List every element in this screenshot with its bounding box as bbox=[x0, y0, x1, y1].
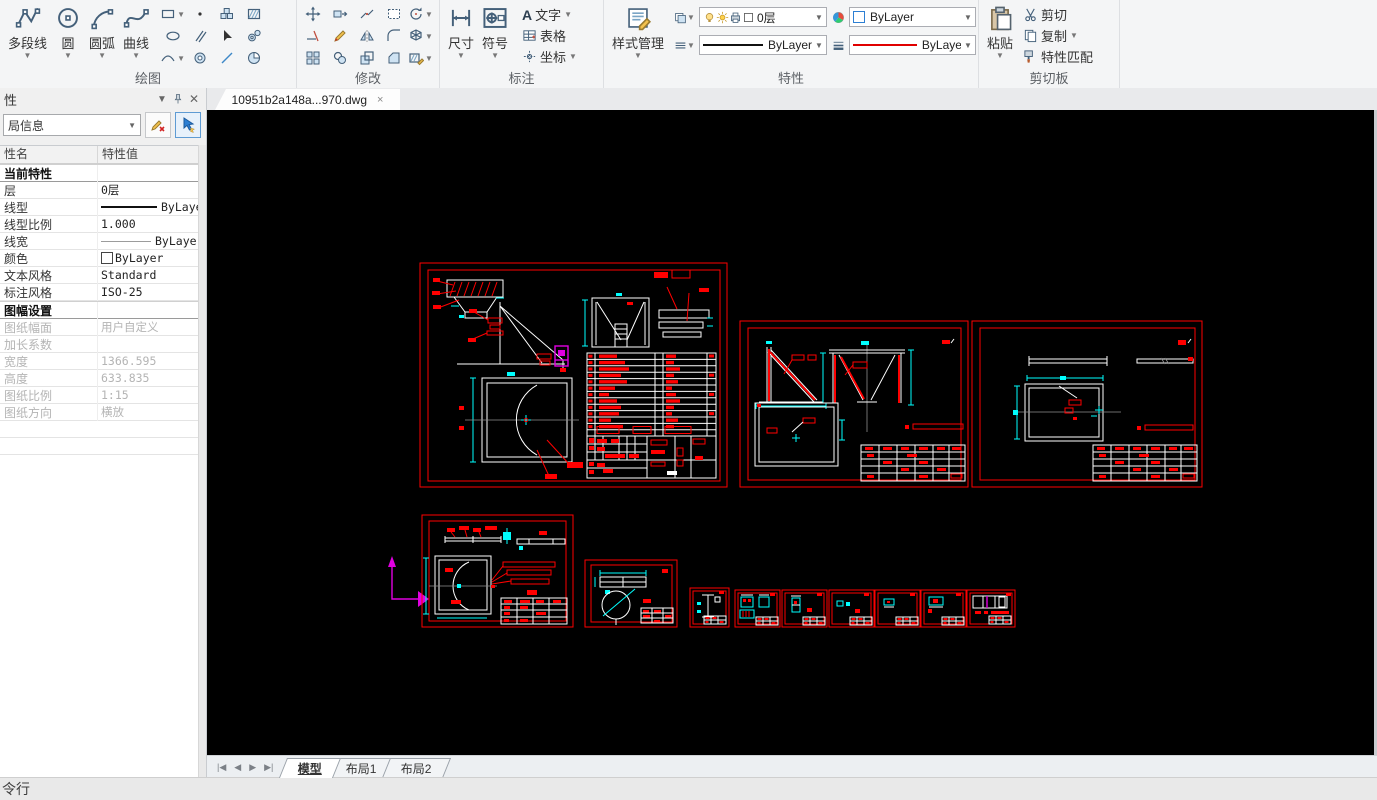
circle-label: 圆 bbox=[62, 33, 75, 52]
stretch-icon bbox=[332, 6, 348, 22]
ribbon-group-draw: 多段线 ▼ 圆 ▼ 圆弧 ▼ 曲线 ▼ ▼▼ bbox=[0, 0, 297, 88]
stretch-button[interactable] bbox=[326, 3, 353, 25]
linetype-menu-icon[interactable] bbox=[674, 39, 687, 52]
spline-icon bbox=[123, 5, 149, 31]
break-button[interactable] bbox=[353, 3, 380, 25]
model-space bbox=[207, 110, 1377, 755]
select-rect-button[interactable] bbox=[380, 3, 407, 25]
blocks-icon bbox=[219, 6, 235, 22]
symbol-icon bbox=[482, 5, 508, 31]
explode-button[interactable]: ▼ bbox=[407, 25, 434, 47]
layout-nav-buttons: |◀ ◀ ▶ ▶| bbox=[207, 756, 283, 778]
copy-button[interactable]: 复制 ▼ bbox=[1019, 25, 1097, 46]
drawing-sheet-small-4 bbox=[829, 590, 874, 627]
table-label: 表格 bbox=[540, 26, 566, 45]
chevron-down-icon: ▼ bbox=[687, 14, 695, 21]
cad-application-window: 多段线 ▼ 圆 ▼ 圆弧 ▼ 曲线 ▼ ▼▼ bbox=[0, 0, 1377, 800]
property-name: 线宽 bbox=[0, 233, 98, 250]
layout-tab-label: 模型 bbox=[298, 760, 322, 777]
drawing-sheet-5 bbox=[585, 560, 677, 627]
style-manager-label: 样式管理 bbox=[612, 33, 664, 52]
chevron-down-icon: ▼ bbox=[177, 11, 185, 18]
modify-group-label: 修改 bbox=[297, 71, 439, 88]
cut-icon bbox=[1023, 7, 1038, 22]
property-section-header: 图幅设置 bbox=[0, 301, 200, 319]
bulb-icon bbox=[703, 11, 716, 24]
layout-tab-label: 布局2 bbox=[401, 760, 432, 777]
copy-object-button[interactable] bbox=[326, 47, 353, 69]
properties-table: 性名 特性值 当前特性层0层线型ByLayer线型比例1.000线宽ByLaye… bbox=[0, 145, 200, 777]
pick-arrow-button[interactable] bbox=[213, 25, 240, 47]
select-rect-icon bbox=[386, 6, 402, 22]
layout-tab-label: 布局1 bbox=[346, 760, 377, 777]
modify-tools-grid: ▼▼▼ bbox=[299, 3, 434, 69]
property-row-empty bbox=[0, 421, 200, 438]
column-header-name: 性名 bbox=[0, 146, 98, 163]
linetype-swatch bbox=[101, 206, 157, 208]
table-icon bbox=[522, 28, 537, 43]
polyline-button[interactable]: 多段线 ▼ bbox=[5, 2, 50, 59]
scale-button[interactable] bbox=[353, 47, 380, 69]
panel-scrollbar[interactable] bbox=[198, 145, 206, 777]
draw-group-label: 绘图 bbox=[0, 71, 296, 88]
copy-label: 复制 bbox=[1041, 26, 1067, 45]
property-value[interactable]: 1.000 bbox=[98, 217, 200, 231]
rotate-button[interactable]: ▼ bbox=[407, 3, 434, 25]
drawing-canvas[interactable] bbox=[207, 110, 1377, 755]
arc-button[interactable]: 圆弧 ▼ bbox=[86, 2, 118, 59]
chevron-down-icon: ▼ bbox=[687, 42, 695, 49]
ribbon-group-properties: 样式管理 ▼ ▼ 0层 ▼ bbox=[604, 0, 979, 88]
lineweight-dropdown[interactable]: ByLayer ▼ bbox=[849, 35, 976, 55]
annotate-group-label: 标注 bbox=[440, 71, 603, 88]
property-value[interactable]: ByLayer bbox=[98, 200, 200, 214]
property-name: 宽度 bbox=[0, 353, 98, 370]
style-manager-button[interactable]: 样式管理 ▼ bbox=[609, 2, 667, 59]
circle-button[interactable]: 圆 ▼ bbox=[52, 2, 84, 59]
drawing-sheet-2 bbox=[740, 321, 968, 487]
chevron-down-icon: ▼ bbox=[425, 11, 433, 18]
chevron-down-icon: ▼ bbox=[457, 52, 465, 59]
property-name: 文本风格 bbox=[0, 267, 98, 284]
paste-button[interactable]: 粘贴 ▼ bbox=[984, 2, 1016, 59]
clipboard-group-label: 剪切板 bbox=[979, 71, 1119, 88]
document-tab-title: 10951b2a148a...970.dwg bbox=[232, 93, 367, 107]
hatch-icon bbox=[246, 6, 262, 22]
blocks-button[interactable] bbox=[213, 3, 240, 25]
style-manager-icon bbox=[625, 5, 651, 31]
object-selector-dropdown[interactable]: 局信息 ▼ bbox=[3, 114, 141, 136]
ellipse-icon bbox=[165, 28, 181, 44]
layer-dropdown[interactable]: 0层 ▼ bbox=[699, 7, 827, 27]
chevron-down-icon: ▼ bbox=[128, 121, 136, 130]
paste-icon bbox=[987, 5, 1013, 31]
properties-panel: 性 ▼ ✕ 局信息 ▼ 性名 特性值 当前特性层0层线型ByLayer线型比例1… bbox=[0, 88, 207, 777]
chevron-down-icon: ▼ bbox=[961, 13, 972, 22]
property-value[interactable]: 横放 bbox=[98, 404, 200, 420]
property-value[interactable]: ByLayer bbox=[98, 251, 200, 265]
symbol-label: 符号 bbox=[482, 33, 508, 52]
property-name: 层 bbox=[0, 182, 98, 199]
chevron-down-icon[interactable]: ▼ bbox=[154, 94, 170, 105]
property-value[interactable]: Standard bbox=[98, 268, 200, 282]
property-row[interactable]: 文本风格Standard bbox=[0, 267, 200, 284]
ellipse-button[interactable] bbox=[159, 25, 186, 47]
layout-tab-layout2[interactable]: 布局2 bbox=[382, 758, 451, 778]
layer-color-icon bbox=[742, 11, 755, 24]
scale-icon bbox=[359, 50, 375, 66]
match-properties-button[interactable]: 特性匹配 bbox=[1019, 46, 1097, 67]
chamfer-button[interactable] bbox=[380, 47, 407, 69]
chevron-down-icon: ▼ bbox=[177, 55, 185, 62]
cut-label: 剪切 bbox=[1041, 5, 1067, 24]
pie-button[interactable] bbox=[240, 47, 267, 69]
color-swatch bbox=[101, 252, 113, 264]
color-swatch bbox=[853, 11, 865, 23]
chevron-down-icon: ▼ bbox=[425, 33, 433, 40]
edit-pencil-button[interactable] bbox=[326, 25, 353, 47]
line-icon bbox=[219, 50, 235, 66]
dimension-button[interactable]: 尺寸 ▼ bbox=[445, 2, 477, 59]
line-button[interactable] bbox=[213, 47, 240, 69]
arc-icon bbox=[89, 5, 115, 31]
chevron-down-icon: ▼ bbox=[961, 41, 972, 50]
text-icon: A bbox=[522, 7, 532, 23]
text-label: 文字 bbox=[535, 5, 561, 24]
property-name: 图纸幅面 bbox=[0, 319, 98, 336]
curve-icon bbox=[160, 50, 176, 66]
text-button[interactable]: A 文字 ▼ bbox=[518, 4, 581, 25]
drawing-sheet-small-5 bbox=[875, 590, 920, 627]
parallel-icon bbox=[192, 28, 208, 44]
property-row[interactable]: 图纸幅面用户自定义 bbox=[0, 319, 200, 336]
break-icon bbox=[359, 6, 375, 22]
polyline-label: 多段线 bbox=[8, 33, 47, 52]
color-dropdown[interactable]: ByLayer ▼ bbox=[849, 7, 976, 27]
move-button[interactable] bbox=[299, 3, 326, 25]
drawing-sheet-3 bbox=[972, 321, 1202, 487]
printer-icon bbox=[729, 11, 742, 24]
parallel-button[interactable] bbox=[186, 25, 213, 47]
layers-icon[interactable] bbox=[674, 11, 687, 24]
linetype-swatch bbox=[703, 44, 763, 46]
object-selector-value: 局信息 bbox=[8, 117, 44, 134]
document-tab-strip: 10951b2a148a...970.dwg × bbox=[207, 88, 1377, 111]
property-row-empty bbox=[0, 438, 200, 455]
lineweight-swatch bbox=[101, 241, 151, 242]
property-name: 颜色 bbox=[0, 250, 98, 267]
chevron-down-icon: ▼ bbox=[634, 52, 642, 59]
drawing-sheet-small-1 bbox=[690, 588, 729, 627]
coordinate-button[interactable]: 坐标 ▼ bbox=[518, 46, 581, 67]
property-row[interactable]: 线宽ByLayer bbox=[0, 233, 200, 250]
hatch-edit-icon bbox=[408, 50, 424, 66]
circle-icon bbox=[55, 5, 81, 31]
ribbon: 多段线 ▼ 圆 ▼ 圆弧 ▼ 曲线 ▼ ▼▼ bbox=[0, 0, 1377, 89]
dimension-icon bbox=[448, 5, 474, 31]
explode-icon bbox=[408, 28, 424, 44]
drawing-sheet-small-3 bbox=[782, 590, 827, 627]
sun-icon bbox=[716, 11, 729, 24]
copy-object-icon bbox=[332, 50, 348, 66]
chevron-down-icon: ▼ bbox=[132, 52, 140, 59]
chevron-down-icon: ▼ bbox=[64, 52, 72, 59]
first-tab-icon[interactable]: |◀ bbox=[217, 762, 226, 773]
arc-label: 圆弧 bbox=[89, 33, 115, 52]
property-row[interactable]: 层0层 bbox=[0, 182, 200, 199]
quick-select-button[interactable] bbox=[175, 112, 201, 138]
point-button[interactable] bbox=[186, 3, 213, 25]
ribbon-group-clipboard: 粘贴 ▼ 剪切 复制 ▼ 特性匹配 bbox=[979, 0, 1120, 88]
property-row[interactable]: 颜色ByLayer bbox=[0, 250, 200, 267]
drawing-sheet-small-2 bbox=[735, 590, 780, 627]
pie-icon bbox=[246, 50, 262, 66]
column-header-value: 特性值 bbox=[98, 146, 200, 163]
property-row[interactable]: 图纸方向横放 bbox=[0, 404, 200, 421]
pick-arrow-icon bbox=[219, 28, 235, 44]
property-row[interactable]: 线型比例1.000 bbox=[0, 216, 200, 233]
drawing-sheet-4 bbox=[422, 515, 573, 627]
property-name: 线型比例 bbox=[0, 216, 98, 233]
chevron-down-icon: ▼ bbox=[425, 55, 433, 62]
property-row[interactable]: 线型ByLayer bbox=[0, 199, 200, 216]
coordinate-icon bbox=[522, 49, 537, 64]
chamfer-icon bbox=[386, 50, 402, 66]
prev-tab-icon[interactable]: ◀ bbox=[234, 762, 241, 773]
property-name: 标注风格 bbox=[0, 284, 98, 301]
layout-tab-model[interactable]: 模型 bbox=[279, 758, 341, 778]
property-name: 线型 bbox=[0, 199, 98, 216]
chevron-down-icon: ▼ bbox=[24, 52, 32, 59]
property-section-header: 当前特性 bbox=[0, 164, 200, 182]
hatch-button[interactable] bbox=[240, 3, 267, 25]
clear-properties-button[interactable] bbox=[145, 112, 171, 138]
drawing-sheet-small-6 bbox=[921, 590, 966, 627]
color-wheel-icon[interactable] bbox=[832, 11, 845, 24]
property-row[interactable]: 宽度1366.595 bbox=[0, 353, 200, 370]
move-icon bbox=[305, 6, 321, 22]
chevron-down-icon: ▼ bbox=[564, 11, 572, 18]
property-name: 高度 bbox=[0, 370, 98, 387]
rotate-icon bbox=[408, 6, 424, 22]
coordinate-label: 坐标 bbox=[540, 47, 566, 66]
next-tab-icon[interactable]: ▶ bbox=[249, 762, 256, 773]
edit-pencil-icon bbox=[332, 28, 348, 44]
match-properties-icon bbox=[1023, 49, 1038, 64]
panel-title: 性 bbox=[4, 90, 17, 109]
property-value[interactable]: 0层 bbox=[98, 182, 200, 198]
ribbon-group-modify: ▼▼▼ 修改 bbox=[297, 0, 440, 88]
lineweight-value: ByLayer bbox=[922, 38, 961, 52]
property-value[interactable]: 633.835 bbox=[98, 371, 200, 385]
rectangle-button[interactable]: ▼ bbox=[159, 3, 186, 25]
hatch-edit-button[interactable]: ▼ bbox=[407, 47, 434, 69]
ucs-icon bbox=[388, 556, 429, 607]
fillet-icon bbox=[386, 28, 402, 44]
close-icon[interactable]: × bbox=[377, 94, 383, 106]
match-properties-label: 特性匹配 bbox=[1041, 47, 1093, 66]
property-value[interactable]: 用户自定义 bbox=[98, 319, 200, 335]
donut-icon bbox=[192, 50, 208, 66]
chevron-down-icon: ▼ bbox=[98, 52, 106, 59]
property-name: 当前特性 bbox=[0, 165, 98, 182]
lineweight-swatch bbox=[853, 44, 917, 46]
spline-label: 曲线 bbox=[123, 33, 149, 52]
property-name: 加长系数 bbox=[0, 336, 98, 353]
mirror-icon bbox=[359, 28, 375, 44]
donut-button[interactable] bbox=[186, 47, 213, 69]
property-value[interactable]: 1366.595 bbox=[98, 354, 200, 368]
drawing-sheet-small-7 bbox=[967, 590, 1015, 627]
property-row[interactable]: 图纸比例1:15 bbox=[0, 387, 200, 404]
trim-icon bbox=[305, 28, 321, 44]
gears-icon bbox=[246, 28, 262, 44]
document-tab[interactable]: 10951b2a148a...970.dwg × bbox=[215, 89, 400, 110]
color-value: ByLayer bbox=[870, 10, 914, 24]
mirror-button[interactable] bbox=[353, 25, 380, 47]
linetype-dropdown[interactable]: ByLayer ▼ bbox=[699, 35, 827, 55]
array-icon bbox=[305, 50, 321, 66]
ribbon-group-annotate: 尺寸 ▼ 符号 ▼ A 文字 ▼ 表格 bbox=[440, 0, 604, 88]
property-row[interactable]: 高度633.835 bbox=[0, 370, 200, 387]
property-name: 图纸比例 bbox=[0, 387, 98, 404]
current-layer-value: 0层 bbox=[757, 9, 776, 26]
point-icon bbox=[192, 6, 208, 22]
linetype-value: ByLayer bbox=[768, 38, 812, 52]
fillet-button[interactable] bbox=[380, 25, 407, 47]
trim-button[interactable] bbox=[299, 25, 326, 47]
drawing-sheet-1 bbox=[420, 263, 727, 487]
ribbon-empty-area bbox=[1120, 0, 1377, 88]
layout-tab-bar: |◀ ◀ ▶ ▶| 模型布局1布局2 bbox=[207, 755, 1377, 778]
property-name: 图纸方向 bbox=[0, 404, 98, 421]
paste-label: 粘贴 bbox=[987, 33, 1013, 52]
property-name: 图幅设置 bbox=[0, 302, 98, 319]
chevron-down-icon: ▼ bbox=[996, 52, 1004, 59]
pin-icon[interactable] bbox=[170, 93, 186, 105]
table-button[interactable]: 表格 bbox=[518, 25, 581, 46]
rectangle-icon bbox=[160, 6, 176, 22]
copy-icon bbox=[1023, 28, 1038, 43]
chevron-down-icon: ▼ bbox=[569, 53, 577, 60]
property-row[interactable]: 标注风格ISO-25 bbox=[0, 284, 200, 301]
symbol-button[interactable]: 符号 ▼ bbox=[479, 2, 511, 59]
property-value[interactable]: 1:15 bbox=[98, 388, 200, 402]
cut-button[interactable]: 剪切 bbox=[1019, 4, 1097, 25]
chevron-down-icon: ▼ bbox=[812, 41, 823, 50]
property-value[interactable]: ISO-25 bbox=[98, 285, 200, 299]
polyline-icon bbox=[15, 5, 41, 31]
command-line-label: 令行 bbox=[2, 779, 30, 799]
properties-group-label: 特性 bbox=[604, 71, 978, 88]
chevron-down-icon: ▼ bbox=[1070, 32, 1078, 39]
chevron-down-icon: ▼ bbox=[812, 13, 823, 22]
last-tab-icon[interactable]: ▶| bbox=[264, 762, 273, 773]
gears-button[interactable] bbox=[240, 25, 267, 47]
command-bar[interactable]: 令行 bbox=[0, 777, 1377, 800]
close-icon[interactable]: ✕ bbox=[186, 92, 202, 106]
property-row[interactable]: 加长系数 bbox=[0, 336, 200, 353]
chevron-down-icon: ▼ bbox=[491, 52, 499, 59]
lineweight-icon[interactable] bbox=[832, 39, 845, 52]
property-value[interactable]: ByLayer bbox=[98, 234, 200, 248]
spline-button[interactable]: 曲线 ▼ bbox=[120, 2, 152, 59]
curve-button[interactable]: ▼ bbox=[159, 47, 186, 69]
draw-tools-grid: ▼▼ bbox=[159, 3, 267, 69]
dimension-label: 尺寸 bbox=[448, 33, 474, 52]
array-button[interactable] bbox=[299, 47, 326, 69]
